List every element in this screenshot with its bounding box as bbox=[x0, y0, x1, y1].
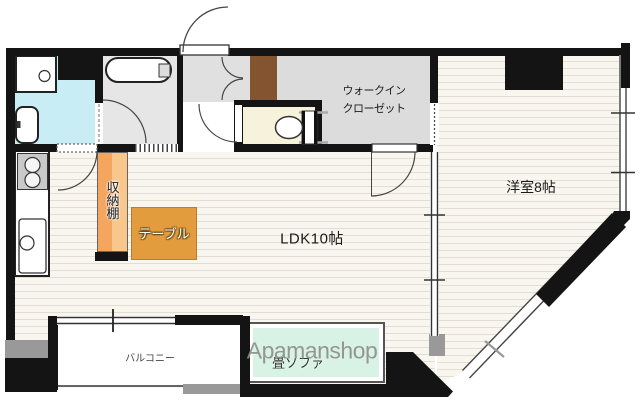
entry-door-leaf bbox=[180, 45, 229, 55]
bathroom-door-arc bbox=[103, 100, 146, 143]
washroom-door-arc bbox=[58, 151, 97, 190]
watermark-text: Apamanshop bbox=[247, 338, 378, 365]
balcony-label: バルコニー bbox=[125, 350, 175, 365]
toilet-bowl-icon bbox=[276, 117, 303, 139]
floor-plan: ウォークイン クローゼット 洋室8帖 LDK10帖 収納棚 テーブル バルコニー… bbox=[0, 0, 640, 400]
washroom-door-leaf bbox=[57, 144, 97, 152]
bathtub-faucet-icon bbox=[159, 64, 170, 77]
walk-in-closet-label-line2: クローゼット bbox=[343, 100, 406, 116]
walk-in-closet-label-line1: ウォークイン bbox=[343, 82, 406, 98]
ldk-label: LDK10帖 bbox=[280, 228, 344, 249]
stove-burner-icon bbox=[25, 173, 40, 188]
stove-burner-icon bbox=[25, 158, 40, 173]
closet-door-arc bbox=[371, 152, 415, 196]
closet-door-leaf bbox=[372, 144, 417, 152]
storage-shelf-label: 収納棚 bbox=[103, 181, 122, 220]
vanity-bowl-icon bbox=[39, 71, 50, 82]
toilet-door-arc bbox=[199, 104, 237, 142]
table-label: テーブル bbox=[138, 224, 189, 243]
western-room-label: 洋室8帖 bbox=[506, 177, 556, 197]
